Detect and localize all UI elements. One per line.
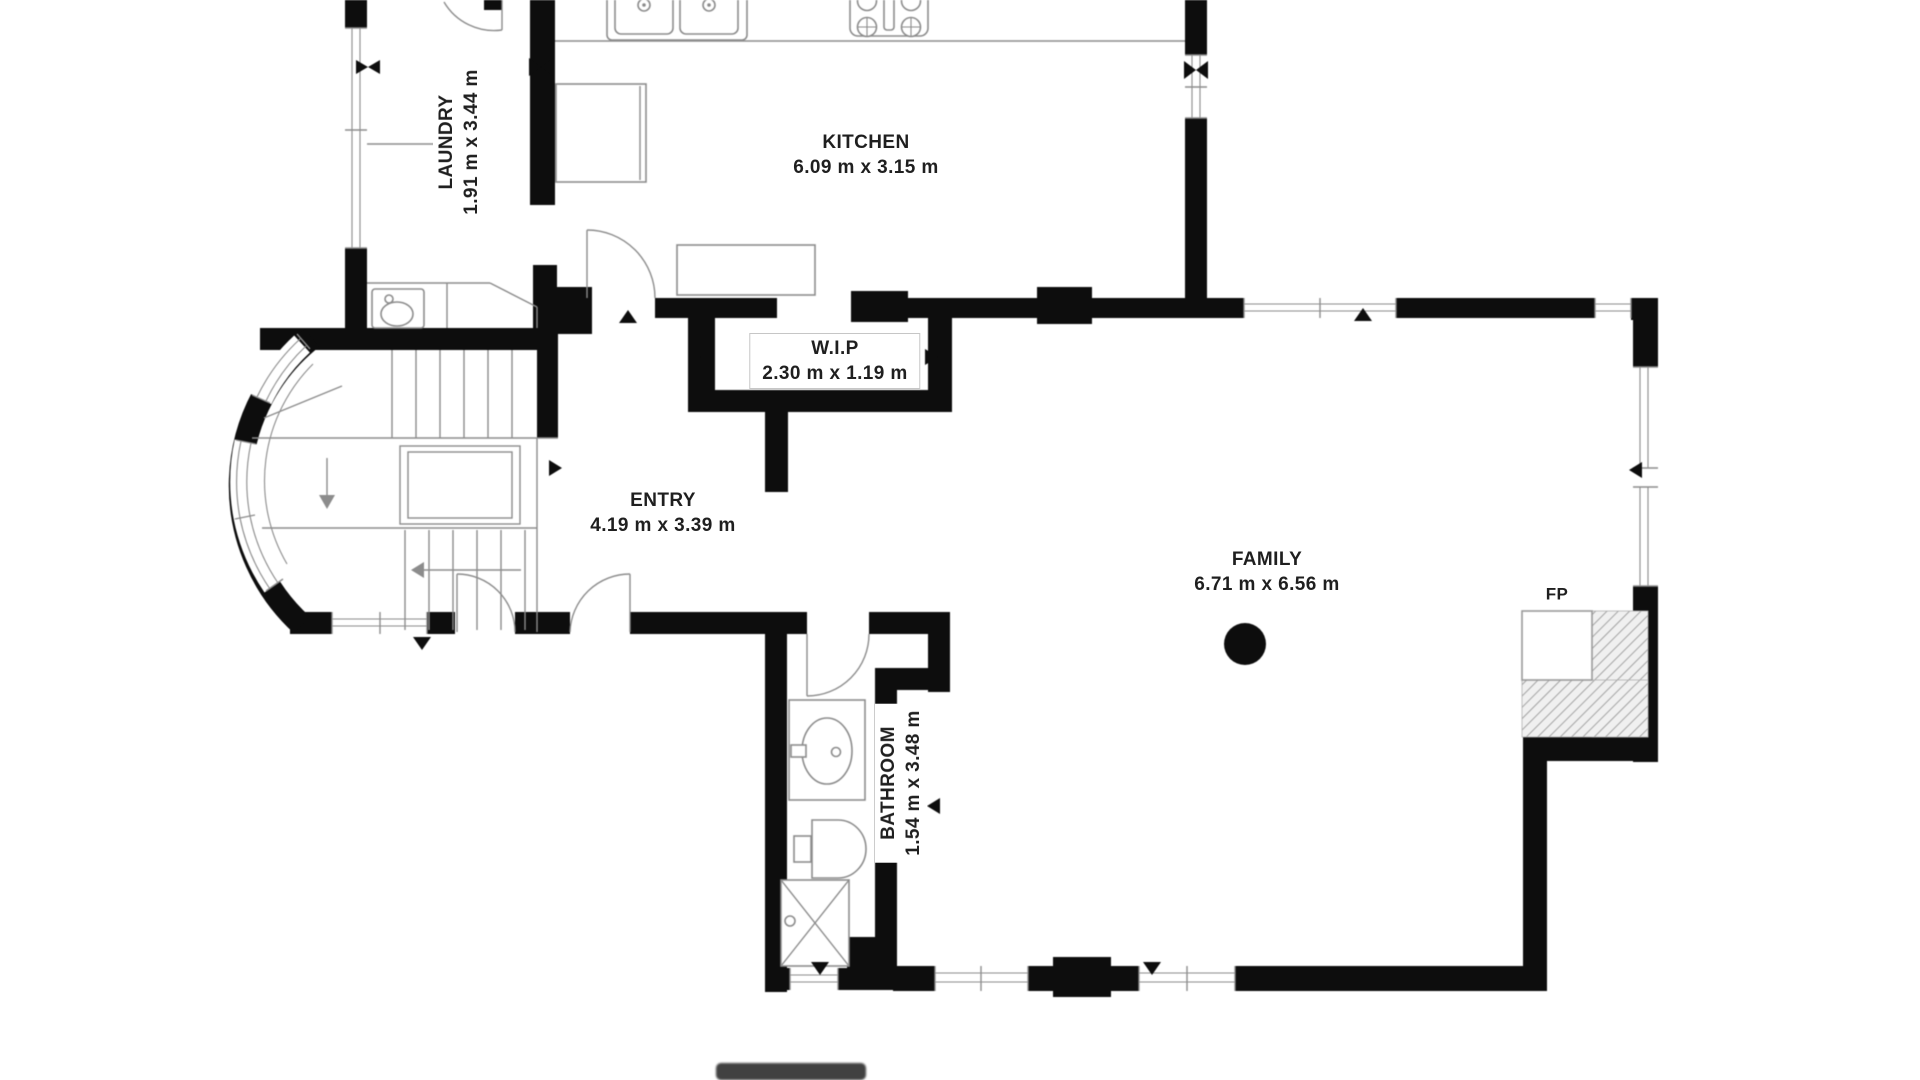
kitchen-island xyxy=(677,245,815,295)
fridge xyxy=(556,84,646,182)
room-name: LAUNDRY xyxy=(434,69,459,214)
room-label-family: FAMILY 6.71 m x 6.56 m xyxy=(1187,546,1346,598)
door-front-left xyxy=(457,574,515,632)
room-name: ENTRY xyxy=(590,488,735,513)
window-bathroom-bottom xyxy=(790,968,838,990)
door-bathroom xyxy=(807,634,869,696)
room-name: FAMILY xyxy=(1194,547,1339,572)
laundry-tub xyxy=(372,289,424,328)
room-label-laundry: LAUNDRY 1.91 m x 3.44 m xyxy=(433,62,485,221)
room-name: W.I.P xyxy=(762,336,907,361)
bay-windows xyxy=(235,334,313,591)
room-label-entry: ENTRY 4.19 m x 3.39 m xyxy=(583,487,742,539)
room-label-wip: W.I.P 2.30 m x 1.19 m xyxy=(749,333,920,389)
kitchen-sink xyxy=(607,0,747,40)
family-fixtures xyxy=(1224,611,1648,737)
room-dims: 6.09 m x 3.15 m xyxy=(793,155,938,180)
floor-plan-screenshot: LAUNDRY 1.91 m x 3.44 m KITCHEN 6.09 m x… xyxy=(0,0,1920,1080)
room-label-bathroom: BATHROOM 1.54 m x 3.48 m xyxy=(875,703,927,862)
shower xyxy=(781,880,849,966)
room-dims: 1.91 m x 3.44 m xyxy=(459,69,484,214)
stairs xyxy=(252,350,558,632)
vanity-sink xyxy=(789,700,865,800)
room-name: KITCHEN xyxy=(793,130,938,155)
toilet xyxy=(794,820,866,878)
door-kitchen-entry xyxy=(587,230,655,298)
room-label-kitchen: KITCHEN 6.09 m x 3.15 m xyxy=(786,129,945,181)
bathroom-fixtures xyxy=(781,700,866,966)
room-name: BATHROOM xyxy=(876,710,901,855)
room-dims: 4.19 m x 3.39 m xyxy=(590,513,735,538)
stove-cooktop xyxy=(850,0,928,37)
room-dims: 2.30 m x 1.19 m xyxy=(762,361,907,386)
floor-plan-drawing xyxy=(0,0,1920,1080)
window-entry-bottom xyxy=(332,612,427,634)
window-family-right xyxy=(1633,367,1658,586)
door-front-right xyxy=(570,574,630,632)
fireplace-label: FP xyxy=(1542,585,1573,604)
fireplace xyxy=(1522,611,1648,737)
room-dims: 6.71 m x 6.56 m xyxy=(1194,572,1339,597)
cropped-bottom-element xyxy=(716,1063,866,1080)
structural-column xyxy=(1224,623,1266,665)
room-dims: 1.54 m x 3.48 m xyxy=(901,710,926,855)
